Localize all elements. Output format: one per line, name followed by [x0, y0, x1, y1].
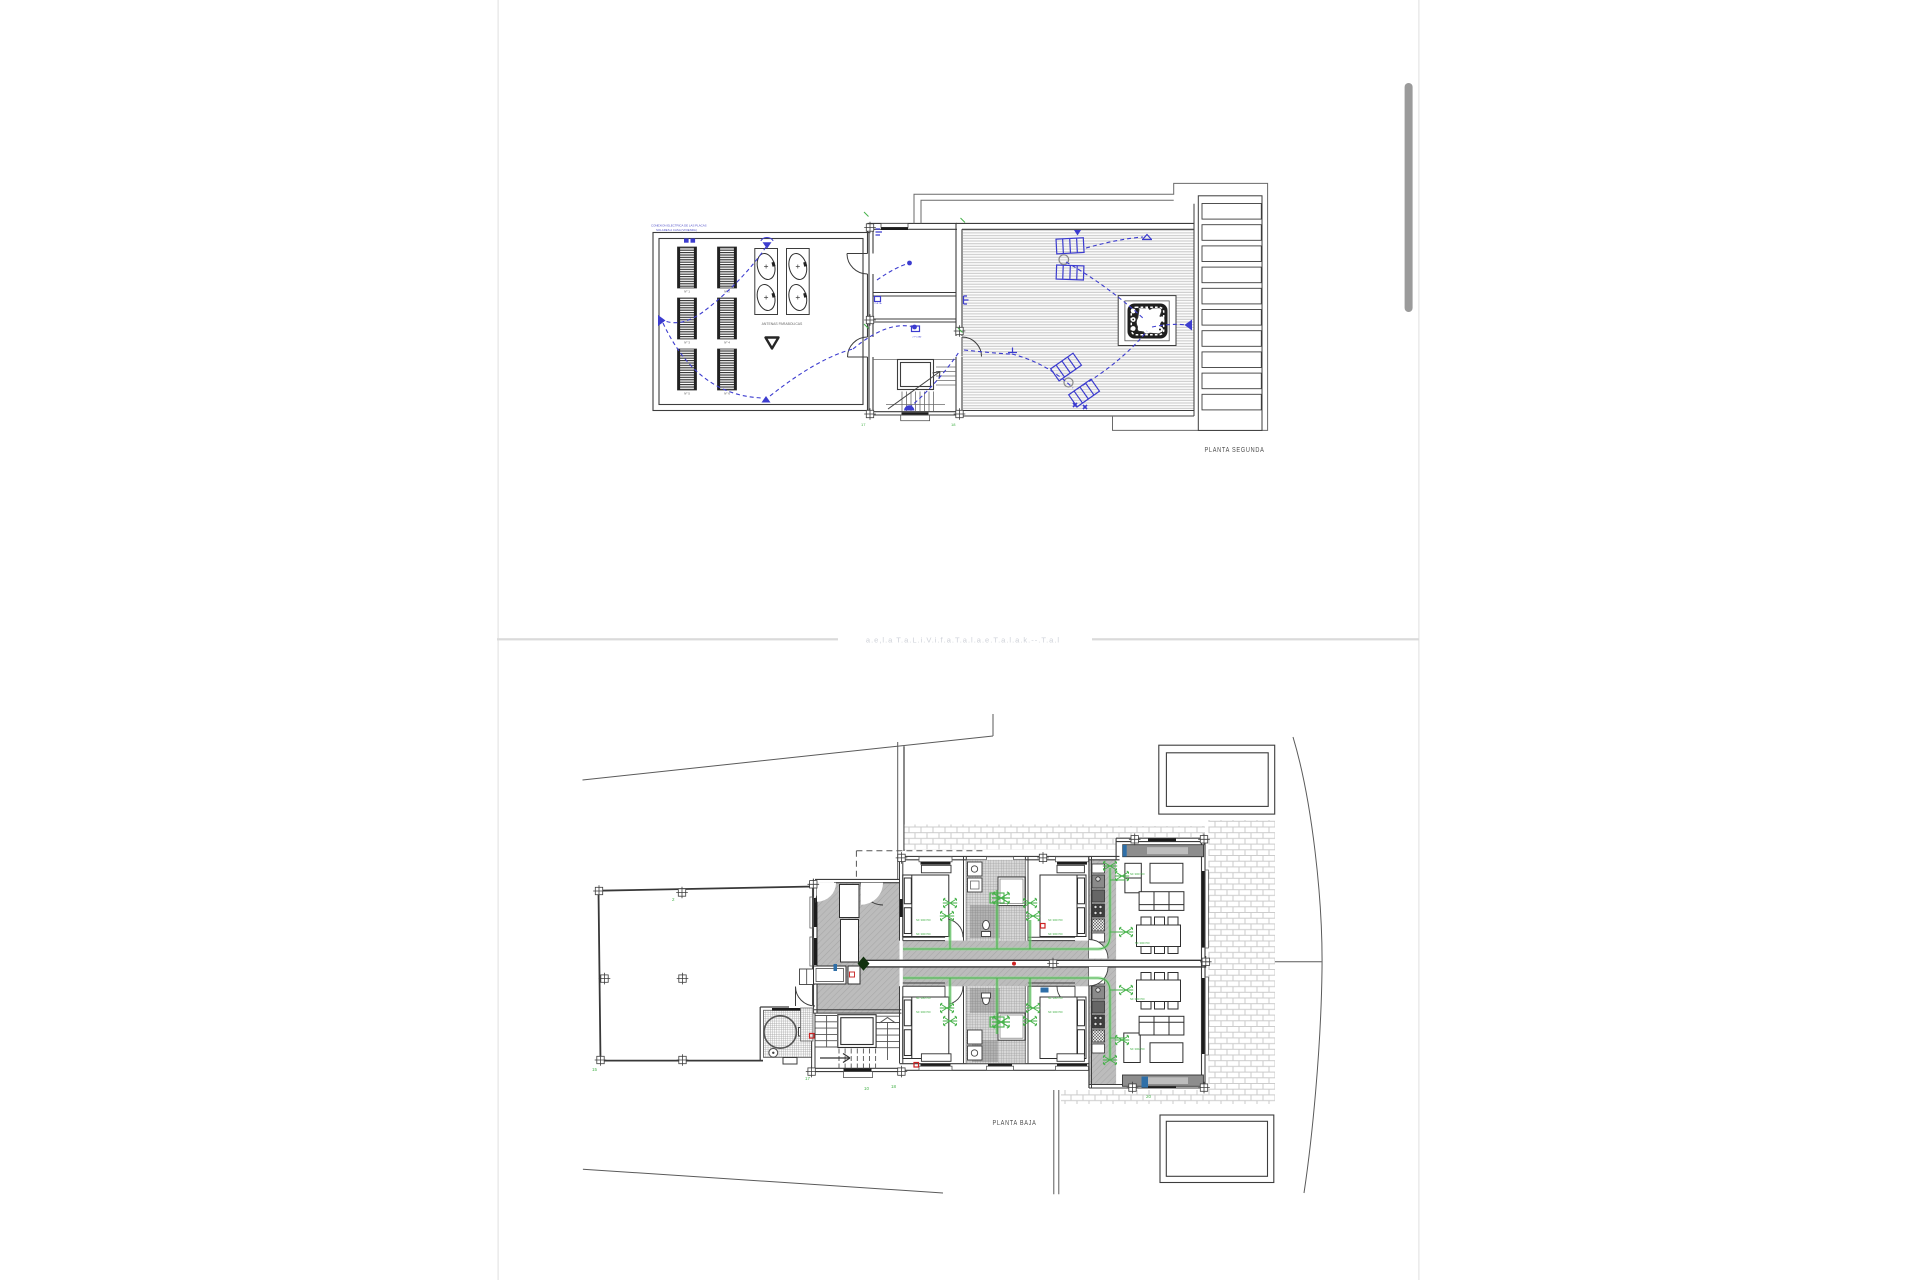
- svg-text:SOLARES A CASA (VIVIENDA): SOLARES A CASA (VIVIENDA): [656, 228, 697, 232]
- svg-text:NF 300/700: NF 300/700: [916, 932, 931, 936]
- svg-text:Nº 1: Nº 1: [684, 290, 690, 294]
- svg-text:10: 10: [864, 1086, 870, 1091]
- svg-text:NF 300/700: NF 300/700: [1130, 997, 1145, 1001]
- svg-text:Nº 3: Nº 3: [684, 341, 690, 345]
- svg-text:17: 17: [861, 422, 866, 427]
- svg-text:NF 300/700: NF 300/700: [916, 996, 931, 1000]
- svg-text:20: 20: [1146, 1094, 1152, 1099]
- svg-text:C A J A: C A J A: [874, 302, 882, 305]
- svg-text:CONEXION ELECTRICA DE LAS PLAC: CONEXION ELECTRICA DE LAS PLACAS: [651, 224, 707, 228]
- svg-text:a.e,l.a T.a.L.i.V.i.f.a.T.a.l.: a.e,l.a T.a.L.i.V.i.f.a.T.a.l.a.e.T.a.l.…: [866, 636, 1060, 645]
- svg-text:NF 300/700: NF 300/700: [1048, 996, 1063, 1000]
- svg-text:PLANTA SEGUNDA: PLANTA SEGUNDA: [1205, 447, 1265, 454]
- svg-text:NF 300/700: NF 300/700: [1130, 872, 1145, 876]
- svg-text:PLANTA BAJA: PLANTA BAJA: [993, 1120, 1037, 1127]
- svg-text:NF 300/700: NF 300/700: [916, 1010, 931, 1014]
- svg-text:ANTENAS PARABOLICAS: ANTENAS PARABOLICAS: [762, 322, 803, 326]
- svg-text:NF 300/700: NF 300/700: [1048, 918, 1063, 922]
- svg-text:NF 300/700: NF 300/700: [1048, 1010, 1063, 1014]
- svg-text:Nº 4: Nº 4: [724, 341, 730, 345]
- svg-text:NF 300/700: NF 300/700: [1135, 941, 1150, 945]
- svg-text:NF 300/700: NF 300/700: [916, 918, 931, 922]
- svg-text:NF 300/700: NF 300/700: [1048, 932, 1063, 936]
- svg-text:18: 18: [951, 422, 956, 427]
- svg-text:2 TV-SAT: 2 TV-SAT: [912, 336, 922, 339]
- svg-text:18: 18: [891, 1084, 897, 1089]
- svg-text:15: 15: [592, 1067, 598, 1072]
- svg-text:17: 17: [805, 1076, 811, 1081]
- svg-text:NF 300/700: NF 300/700: [1130, 1047, 1145, 1051]
- svg-text:Nº 5: Nº 5: [684, 392, 690, 396]
